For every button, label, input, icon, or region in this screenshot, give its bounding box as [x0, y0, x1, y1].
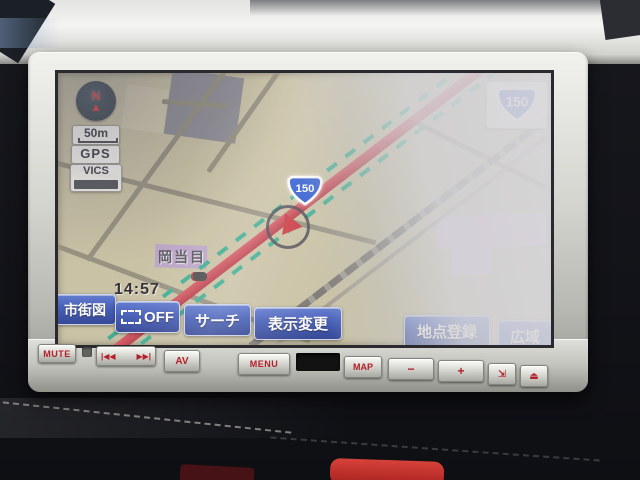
tilt-icon: ⇲	[498, 369, 506, 380]
eject-icon: ⏏	[529, 371, 538, 382]
lcd-map-screen[interactable]: 150 岡当目 14:57 N ▲ 50m GPS VICS	[55, 70, 554, 348]
wide-area-button[interactable]: 広域	[498, 320, 552, 348]
svg-text:150: 150	[296, 183, 315, 195]
dashboard-stitching	[270, 436, 599, 461]
tilt-button[interactable]: ⇲	[488, 363, 516, 385]
mute-button[interactable]: MUTE	[38, 344, 76, 363]
scale-bar-icon	[78, 138, 118, 143]
traffic-signal-icon	[191, 272, 207, 281]
vics-status-badge: VICS	[70, 164, 122, 192]
map-button[interactable]: MAP	[344, 356, 382, 378]
menu-button[interactable]: MENU	[238, 353, 290, 375]
volume-up-button[interactable]: +	[438, 360, 484, 382]
dashed-route-icon	[121, 310, 141, 324]
hazard-red-trim	[330, 458, 445, 480]
seek-rocker-button[interactable]: |◀◀ ▶▶|	[96, 346, 156, 366]
map-building-pink	[451, 242, 492, 275]
svg-text:150: 150	[506, 94, 529, 109]
gps-status-badge: GPS	[71, 145, 120, 164]
route-off-button[interactable]: OFF	[115, 301, 180, 333]
navigation-unit: 150 岡当目 14:57 N ▲ 50m GPS VICS	[28, 52, 588, 392]
current-road-badge: 150	[486, 81, 548, 129]
current-position-marker-icon	[266, 205, 310, 249]
dashboard-gloss	[0, 398, 640, 438]
dark-red-trim	[180, 464, 255, 480]
register-point-button[interactable]: 地点登録	[404, 315, 490, 348]
clock-label: 14:57	[114, 281, 160, 299]
map-scale-button[interactable]: 50m	[72, 125, 120, 145]
city-map-button[interactable]: 市街図	[55, 294, 116, 325]
minus-icon: −	[407, 362, 414, 376]
dashboard-top-shadow	[250, 0, 640, 16]
search-button[interactable]: サーチ	[184, 304, 251, 336]
compass-icon[interactable]: N ▲	[76, 81, 116, 121]
map-block	[121, 84, 169, 133]
vics-time-display	[74, 180, 118, 189]
dashboard-corner-right	[599, 0, 640, 40]
route-150-map-shield-icon: 150	[286, 175, 324, 207]
seek-back-icon: |◀◀	[101, 352, 116, 361]
seek-forward-icon: ▶▶|	[136, 352, 151, 361]
display-change-button[interactable]: 表示変更	[254, 307, 342, 340]
windshield-reflection	[0, 18, 60, 48]
remote-sensor	[82, 347, 92, 357]
car-dashboard-photo: 150 岡当目 14:57 N ▲ 50m GPS VICS	[0, 0, 640, 480]
disc-slot	[296, 353, 340, 371]
route-150-shield-icon: 150	[495, 86, 539, 124]
volume-down-button[interactable]: −	[388, 358, 434, 380]
eject-button[interactable]: ⏏	[520, 365, 548, 387]
av-button[interactable]: AV	[164, 350, 200, 372]
place-name-label: 岡当目	[158, 247, 206, 267]
plus-icon: +	[457, 364, 464, 378]
